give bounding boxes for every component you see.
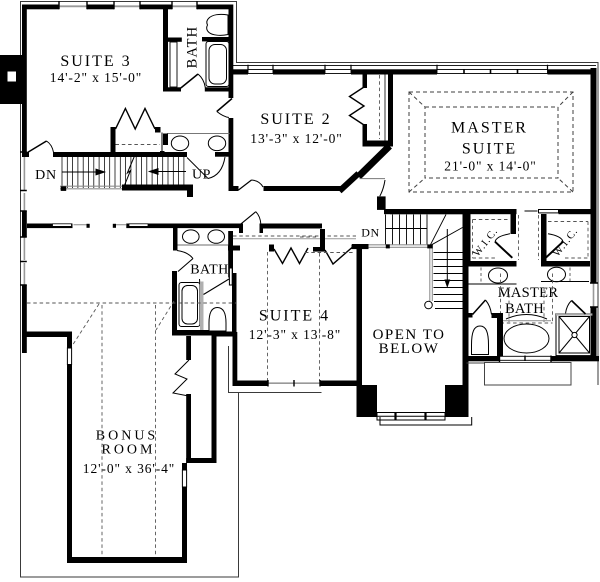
svg-text:SUITE 2: SUITE 2 xyxy=(260,111,331,128)
svg-text:BATH: BATH xyxy=(190,263,229,278)
svg-text:BONUS: BONUS xyxy=(96,429,158,444)
svg-text:DN: DN xyxy=(35,168,57,183)
svg-text:BATH: BATH xyxy=(185,26,201,69)
svg-text:UP: UP xyxy=(192,168,211,183)
svg-text:12'-0" x 36'-4": 12'-0" x 36'-4" xyxy=(83,461,175,476)
svg-text:13'-3" x 12'-0": 13'-3" x 12'-0" xyxy=(250,131,342,146)
svg-text:MASTER: MASTER xyxy=(451,120,528,137)
svg-text:14'-2" x 15'-0": 14'-2" x 15'-0" xyxy=(50,70,142,85)
svg-text:ROOM: ROOM xyxy=(101,443,155,458)
svg-text:BELOW: BELOW xyxy=(379,341,440,357)
svg-text:MASTER: MASTER xyxy=(498,285,559,301)
svg-text:12'-3" x 13'-8": 12'-3" x 13'-8" xyxy=(249,327,341,342)
svg-text:SUITE 3: SUITE 3 xyxy=(60,53,131,70)
svg-text:DN: DN xyxy=(361,226,380,240)
svg-text:21'-0" x 14'-0": 21'-0" x 14'-0" xyxy=(444,159,536,174)
svg-text:SUITE: SUITE xyxy=(462,141,517,158)
